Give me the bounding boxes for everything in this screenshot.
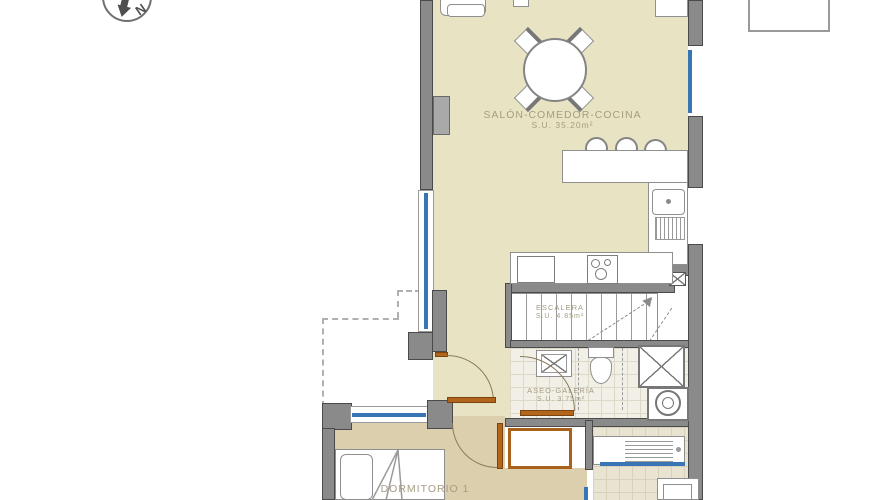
terrace-dashed-outline: [397, 290, 399, 318]
window-left: [424, 193, 428, 329]
room-label-escalera-area: S.U. 4.85m²: [500, 313, 620, 321]
gallery-fixture-inner: [663, 484, 692, 500]
room-label-escalera: ESCALERA S.U. 4.85m²: [500, 304, 620, 321]
floor-plan: N: [0, 0, 890, 500]
terrace-dashed-outline: [322, 318, 324, 407]
window-bedroom: [352, 413, 426, 417]
wall-bedroom-corner-left: [322, 403, 352, 430]
room-label-salon-area: S.U. 35.20m²: [450, 121, 675, 131]
compass-rose: N: [98, 0, 158, 48]
drainboard: [655, 217, 685, 240]
hob-burner: [604, 259, 611, 266]
wall-left-corner: [408, 332, 433, 360]
wall-left-top: [420, 0, 433, 190]
shower: [638, 345, 685, 388]
wall-bedroom-corner-right: [427, 400, 453, 429]
armchair-seat: [447, 4, 485, 17]
wall-kitchen-stairs: [505, 283, 675, 293]
laundry-counter-edge: [600, 462, 685, 466]
room-label-aseo-area: S.U. 3.75m²: [502, 396, 620, 404]
laundry-drain-icon: [676, 447, 681, 452]
door-leaf-entry: [447, 397, 496, 403]
wardrobe: [508, 428, 572, 469]
wall-bedroom-left: [322, 428, 335, 500]
door-leaf-bathroom: [520, 410, 574, 416]
room-label-dormitorio: DORMITORIO 1: [360, 483, 490, 495]
gallery-window-mark: [584, 487, 588, 500]
wall-right-mid: [688, 116, 703, 188]
laundry-drainboard: [625, 439, 673, 462]
wall-right-bottom: [688, 244, 703, 500]
fridge: [517, 256, 555, 283]
door-leaf-bedroom: [497, 423, 503, 469]
wall-entry-stub: [432, 290, 447, 352]
bar-counter: [562, 150, 688, 183]
terrace-dashed-outline: [322, 318, 399, 320]
room-label-escalera-name: ESCALERA: [500, 304, 620, 313]
partition-line: [622, 348, 623, 410]
hob-burner: [591, 259, 600, 268]
room-label-aseo: ASEO-GALERÍA S.U. 3.75m²: [502, 387, 620, 404]
washing-machine-drum-inner: [662, 397, 674, 409]
sink-drain-icon: [666, 199, 671, 204]
wall-right-top: [688, 0, 703, 46]
sideboard: [655, 0, 688, 17]
dining-table: [523, 38, 587, 102]
room-label-aseo-name: ASEO-GALERÍA: [502, 387, 620, 396]
wall-gallery-left: [585, 420, 593, 470]
window-right-upper: [688, 50, 692, 113]
wall-pilaster: [433, 96, 450, 135]
terrace-element: [748, 0, 830, 32]
bedroom-floor-patch: [505, 468, 587, 500]
room-label-salon: SALÓN-COMEDOR-COCINA S.U. 35.20m²: [450, 109, 675, 131]
tv-unit: [513, 0, 529, 7]
hob-burner: [595, 268, 607, 280]
